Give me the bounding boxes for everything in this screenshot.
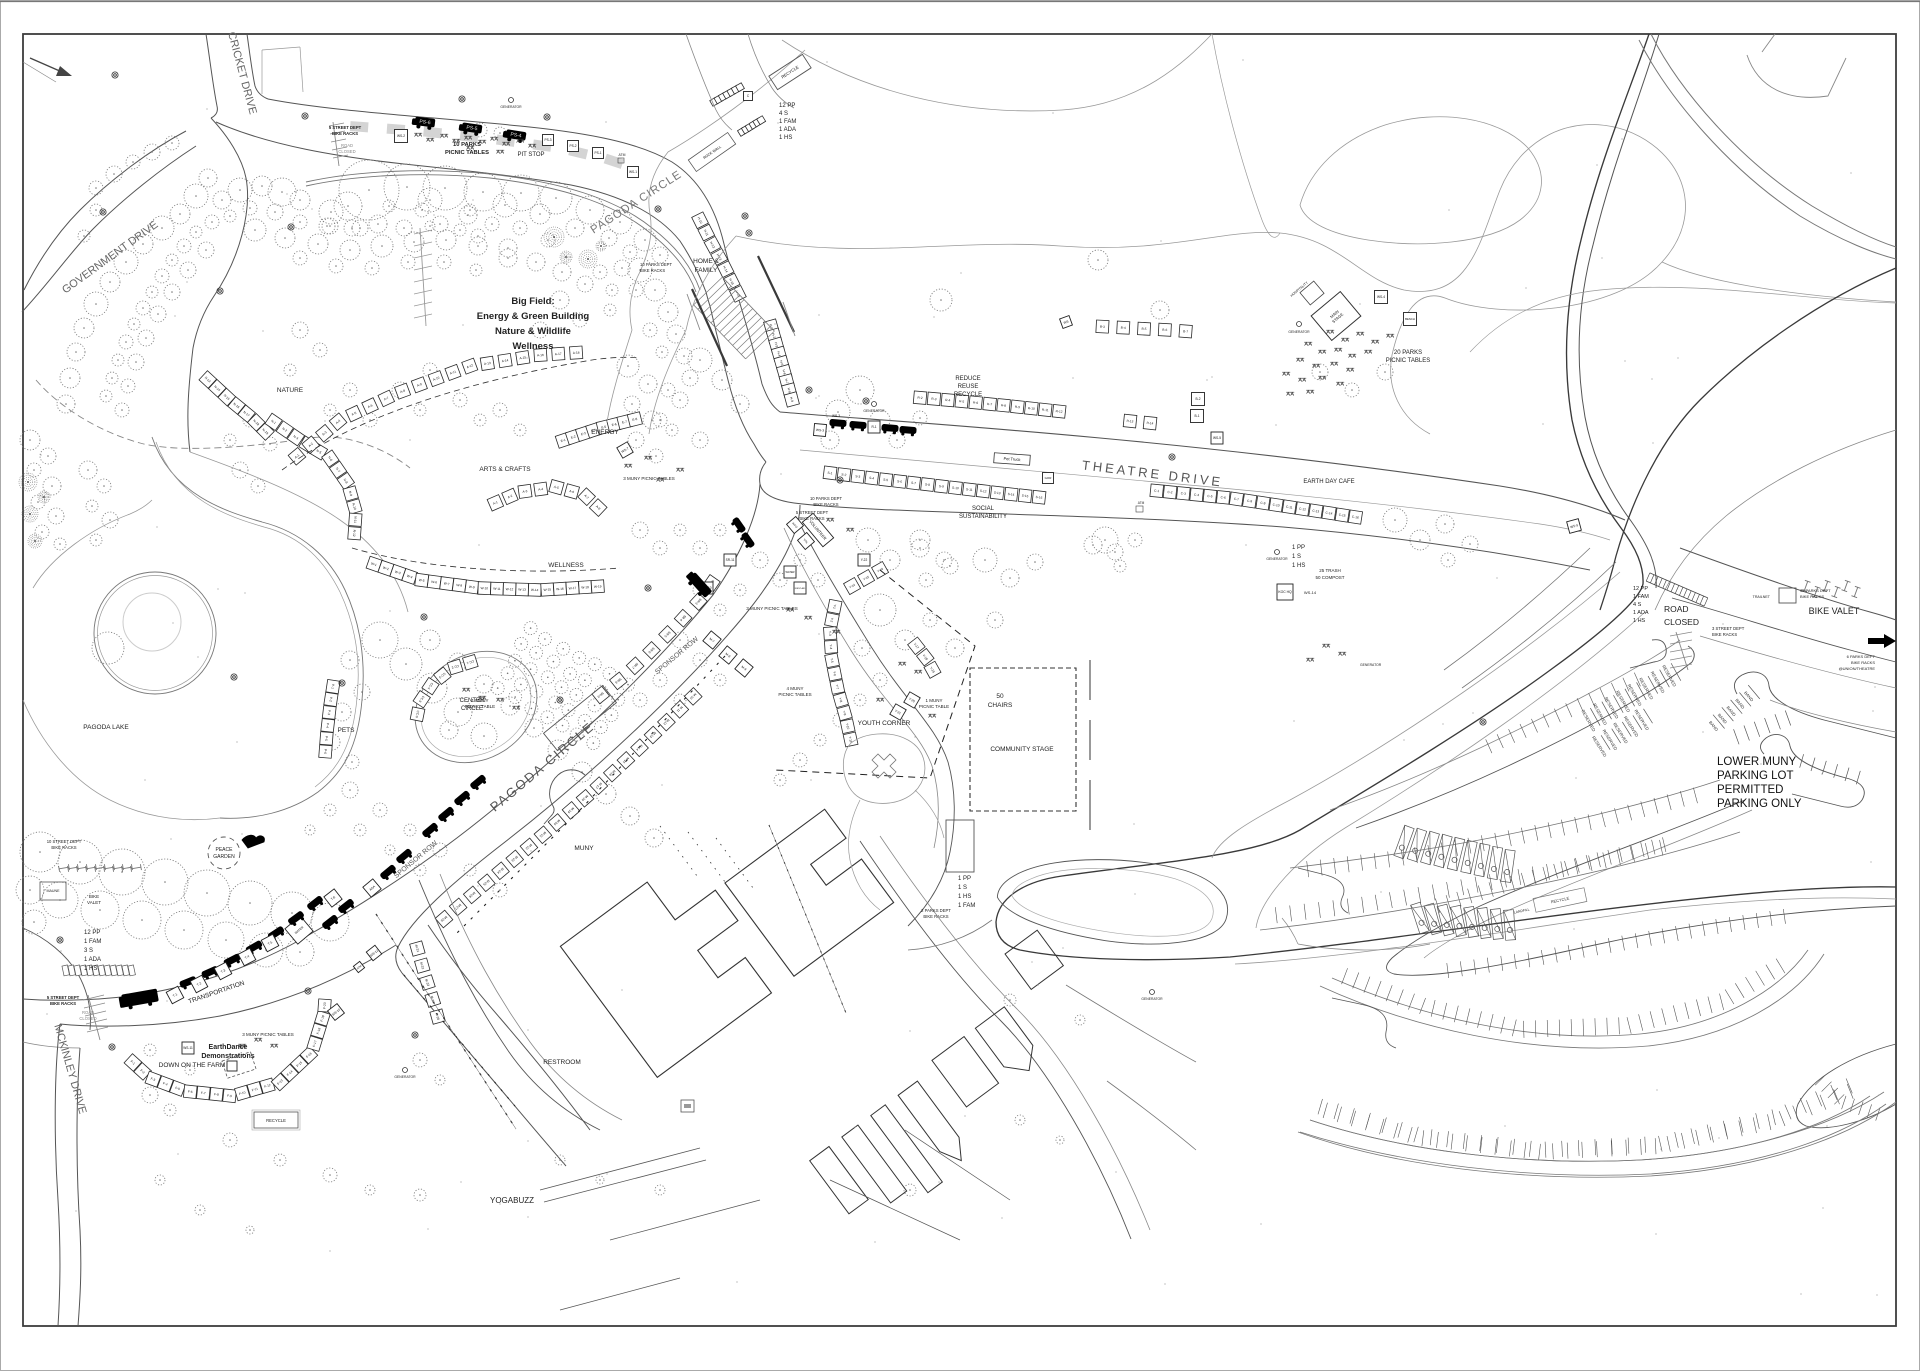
svg-text:W-6: W-6 — [431, 580, 437, 585]
svg-text:R-10: R-10 — [1028, 406, 1036, 411]
svg-text:3 STREET DEPT: 3 STREET DEPT — [1712, 626, 1745, 631]
svg-text:PERMITTED: PERMITTED — [1717, 784, 1783, 796]
svg-text:BIKE RACKS: BIKE RACKS — [640, 268, 665, 273]
svg-text:Big Field:: Big Field: — [511, 296, 554, 307]
svg-text:W-12: W-12 — [506, 587, 514, 591]
svg-text:S-3: S-3 — [855, 474, 861, 479]
svg-text:3 MUNY PICNIC TABLES: 3 MUNY PICNIC TABLES — [746, 606, 798, 611]
svg-text:R-2: R-2 — [917, 396, 923, 400]
svg-text:S-13: S-13 — [994, 491, 1001, 496]
svg-text:DOWN ON THE FARM: DOWN ON THE FARM — [159, 1062, 226, 1069]
svg-text:W-8: W-8 — [456, 583, 462, 588]
svg-text:S-16: S-16 — [1035, 495, 1042, 500]
svg-text:KOC HQ: KOC HQ — [1278, 590, 1292, 594]
svg-text:S-11: S-11 — [966, 487, 973, 492]
svg-text:12 PP: 12 PP — [779, 103, 795, 109]
svg-text:BENCH: BENCH — [1405, 317, 1415, 321]
svg-text:3 S: 3 S — [84, 948, 93, 954]
svg-text:WS-3: WS-3 — [832, 414, 840, 418]
svg-text:R-12: R-12 — [1055, 409, 1063, 414]
svg-text:PAGODA LAKE: PAGODA LAKE — [83, 724, 129, 731]
svg-text:HOME &: HOME & — [693, 258, 719, 265]
svg-text:A-18: A-18 — [573, 351, 580, 355]
svg-text:COMMUNITY STAGE: COMMUNITY STAGE — [990, 746, 1054, 753]
svg-text:C-3: C-3 — [1181, 491, 1187, 496]
svg-text:RECYCLE: RECYCLE — [266, 1118, 286, 1123]
svg-text:1 FAM: 1 FAM — [84, 939, 101, 945]
svg-text:PS-1: PS-1 — [594, 151, 601, 155]
svg-text:P-2: P-2 — [328, 697, 333, 703]
svg-text:SOCIAL: SOCIAL — [972, 506, 995, 512]
svg-text:VALET: VALET — [87, 900, 101, 905]
svg-text:W-15: W-15 — [543, 587, 551, 591]
svg-text:S-5: S-5 — [883, 478, 889, 483]
svg-text:B-3: B-3 — [1100, 325, 1105, 329]
svg-text:1 ADA: 1 ADA — [84, 957, 101, 963]
svg-text:1 ADA: 1 ADA — [1633, 610, 1649, 616]
svg-text:BIKE VALET: BIKE VALET — [1809, 606, 1860, 616]
svg-text:F-9: F-9 — [227, 1094, 232, 1099]
svg-text:N-12: N-12 — [352, 530, 356, 537]
svg-text:LOWER MUNY: LOWER MUNY — [1717, 756, 1797, 768]
svg-text:R-11: R-11 — [1042, 408, 1049, 413]
svg-text:PICNIC TABLE: PICNIC TABLE — [919, 704, 949, 709]
svg-text:MUNY: MUNY — [574, 845, 594, 852]
svg-text:B-4: B-4 — [1121, 326, 1126, 330]
svg-text:1 S: 1 S — [958, 885, 967, 891]
svg-text:BIKE RACKS: BIKE RACKS — [1851, 660, 1875, 665]
svg-text:W-11: W-11 — [493, 587, 501, 591]
svg-text:Y-3: Y-3 — [828, 631, 832, 636]
svg-text:1 HS: 1 HS — [1633, 618, 1646, 624]
svg-text:BIKE RACKS: BIKE RACKS — [1712, 632, 1737, 637]
svg-text:A-17: A-17 — [555, 352, 562, 356]
svg-text:W-17: W-17 — [569, 586, 577, 590]
svg-text:1 FAM: 1 FAM — [958, 903, 975, 909]
svg-text:1 MUNY: 1 MUNY — [471, 698, 488, 703]
svg-text:ROAD: ROAD — [1664, 604, 1689, 614]
svg-text:PS-2: PS-2 — [569, 144, 576, 148]
svg-text:CLOSED: CLOSED — [79, 1016, 96, 1021]
svg-text:RESTROOM: RESTROOM — [543, 1059, 581, 1066]
svg-text:C-9: C-9 — [1260, 501, 1266, 506]
svg-text:F-6: F-6 — [188, 1090, 193, 1095]
svg-text:BIKE RACKS: BIKE RACKS — [923, 914, 948, 919]
svg-text:S-1: S-1 — [827, 471, 833, 476]
svg-text:S-7: S-7 — [911, 481, 917, 486]
svg-text:MAUNE: MAUNE — [47, 889, 61, 893]
svg-text:WELLNESS: WELLNESS — [548, 562, 584, 569]
svg-text:SUSTAINABILITY: SUSTAINABILITY — [959, 514, 1007, 520]
svg-text:A-3: A-3 — [522, 489, 528, 494]
svg-text:12 PP: 12 PP — [84, 930, 100, 936]
svg-text:PICNIC TABLES: PICNIC TABLES — [445, 150, 489, 156]
svg-text:S-9: S-9 — [939, 484, 945, 489]
svg-text:F-7: F-7 — [201, 1091, 206, 1096]
svg-text:4 S: 4 S — [1633, 602, 1642, 608]
svg-text:P-4: P-4 — [325, 723, 330, 729]
svg-text:CHAIRS: CHAIRS — [988, 702, 1013, 709]
svg-text:R-7: R-7 — [987, 402, 993, 407]
svg-text:C-7: C-7 — [1234, 497, 1240, 502]
svg-text:52 PARKS DEPT: 52 PARKS DEPT — [1800, 588, 1831, 593]
svg-text:BIKE RACKS: BIKE RACKS — [799, 516, 824, 521]
svg-text:B-5: B-5 — [1141, 327, 1146, 331]
svg-text:BIKE: BIKE — [89, 894, 99, 899]
svg-text:R-3: R-3 — [931, 397, 937, 401]
svg-text:ENERGY: ENERGY — [591, 429, 619, 436]
svg-text:5 STREET DEPT: 5 STREET DEPT — [796, 510, 829, 515]
svg-text:GOR: GOR — [1045, 476, 1053, 480]
svg-text:P-3: P-3 — [327, 710, 332, 716]
svg-text:GARDEN: GARDEN — [213, 854, 235, 860]
svg-text:WS-2: WS-2 — [397, 134, 405, 138]
svg-text:4 MUNY: 4 MUNY — [786, 686, 803, 691]
svg-text:GENERATOR: GENERATOR — [394, 1075, 416, 1079]
svg-text:1 S: 1 S — [1292, 554, 1301, 560]
svg-text:NATURE: NATURE — [277, 387, 304, 394]
svg-text:CLOSED: CLOSED — [338, 149, 355, 154]
svg-text:R-1: R-1 — [871, 425, 876, 429]
svg-text:12 PP: 12 PP — [1633, 586, 1648, 592]
svg-text:F-8: F-8 — [214, 1092, 219, 1097]
svg-text:2 PARKS DEPT: 2 PARKS DEPT — [921, 908, 951, 913]
svg-text:W-9: W-9 — [469, 585, 475, 590]
svg-text:W-19: W-19 — [594, 584, 602, 588]
svg-text:50 COMPOST: 50 COMPOST — [1315, 575, 1344, 580]
svg-text:FAMILY: FAMILY — [695, 267, 718, 274]
svg-text:BIKE RACKS: BIKE RACKS — [813, 502, 838, 507]
svg-text:10 PARKS DEPT: 10 PARKS DEPT — [640, 262, 672, 267]
svg-text:W-5: W-5 — [419, 578, 425, 583]
svg-text:B-7: B-7 — [1183, 329, 1188, 333]
svg-text:Demonstrations: Demonstrations — [201, 1053, 254, 1060]
svg-text:S-15: S-15 — [1022, 494, 1029, 499]
svg-text:4 S: 4 S — [779, 111, 788, 117]
svg-text:REUSE: REUSE — [958, 384, 979, 390]
svg-text:PS-3: PS-3 — [544, 138, 551, 142]
svg-text:WS-1: WS-1 — [629, 170, 637, 174]
svg-text:Y-4: Y-4 — [829, 644, 833, 649]
svg-text:A-4: A-4 — [538, 487, 544, 492]
svg-text:1 FAM: 1 FAM — [1633, 594, 1649, 600]
svg-text:PARKING ONLY: PARKING ONLY — [1717, 798, 1802, 810]
svg-text:GENERATOR: GENERATOR — [1266, 557, 1288, 561]
svg-text:1 HS: 1 HS — [1292, 563, 1305, 569]
svg-text:R-14: R-14 — [1146, 421, 1153, 426]
svg-text:YOUTH CORNER: YOUTH CORNER — [858, 720, 911, 727]
svg-text:BIKE RACKS: BIKE RACKS — [1800, 594, 1824, 599]
svg-text:R-5: R-5 — [959, 399, 965, 404]
svg-text:A-16: A-16 — [537, 353, 544, 357]
svg-text:PARKING LOT: PARKING LOT — [1717, 770, 1793, 782]
svg-text:YOGABUZZ: YOGABUZZ — [490, 1196, 534, 1205]
svg-text:PICNIC TABLES: PICNIC TABLES — [1386, 358, 1430, 364]
svg-text:1 FAM: 1 FAM — [779, 119, 796, 125]
svg-text:C-2: C-2 — [1167, 490, 1173, 495]
svg-text:EARTH DAY CAFE: EARTH DAY CAFE — [1303, 479, 1354, 485]
svg-text:RECYCLE: RECYCLE — [954, 392, 982, 398]
svg-text:ATM: ATM — [1138, 501, 1145, 505]
svg-text:5 STREET DEPT: 5 STREET DEPT — [47, 995, 80, 1000]
svg-text:@UNION/THEATRE: @UNION/THEATRE — [1839, 666, 1876, 671]
svg-text:C-1: C-1 — [1154, 489, 1160, 494]
svg-text:P-5: P-5 — [324, 736, 328, 741]
svg-text:C-4: C-4 — [1194, 493, 1200, 498]
svg-text:S-14: S-14 — [1008, 492, 1015, 497]
svg-text:Wellness: Wellness — [512, 341, 553, 352]
svg-text:R-4: R-4 — [945, 398, 951, 402]
svg-text:W-10: W-10 — [480, 586, 488, 590]
svg-text:S-8: S-8 — [925, 482, 931, 487]
svg-text:1 HS: 1 HS — [84, 966, 97, 972]
svg-text:S-10: S-10 — [952, 486, 959, 491]
svg-text:1 HS: 1 HS — [958, 894, 971, 900]
svg-text:S-6: S-6 — [897, 479, 903, 484]
svg-text:PIT STOP: PIT STOP — [517, 152, 544, 158]
svg-text:BIKE RACKS: BIKE RACKS — [51, 845, 76, 850]
svg-text:1 PP: 1 PP — [958, 876, 971, 882]
svg-text:W-7: W-7 — [444, 581, 450, 586]
svg-text:ROAD: ROAD — [341, 143, 353, 148]
svg-text:1 MUNY: 1 MUNY — [925, 698, 942, 703]
svg-text:PICNIC TABLES: PICNIC TABLES — [778, 692, 811, 697]
svg-text:R-9: R-9 — [1015, 405, 1021, 410]
svg-text:10 PARKS: 10 PARKS — [453, 142, 481, 148]
svg-text:S-4: S-4 — [869, 476, 875, 481]
svg-text:WS-5: WS-5 — [1213, 436, 1221, 440]
svg-text:ARTS & CRAFTS: ARTS & CRAFTS — [479, 466, 531, 473]
svg-text:S-12: S-12 — [980, 489, 987, 494]
svg-text:P-1: P-1 — [330, 684, 335, 690]
svg-text:25 TRASH: 25 TRASH — [1319, 568, 1340, 573]
svg-text:6 PARKS DEPT: 6 PARKS DEPT — [1847, 654, 1876, 659]
svg-text:GENERATOR: GENERATOR — [1141, 997, 1163, 1001]
svg-text:Y-22: Y-22 — [861, 558, 868, 562]
svg-text:ROAD: ROAD — [82, 1010, 94, 1015]
svg-text:R-8: R-8 — [1001, 403, 1007, 408]
svg-text:20 PARKS: 20 PARKS — [1394, 350, 1422, 356]
svg-text:TRAILNET: TRAILNET — [1753, 595, 1771, 599]
svg-text:WATER: WATER — [785, 570, 794, 574]
svg-text:P-6: P-6 — [323, 749, 327, 754]
svg-text:WS-11: WS-11 — [183, 1046, 193, 1050]
svg-text:GENERATOR: GENERATOR — [1360, 663, 1382, 667]
svg-text:SR-11: SR-11 — [726, 558, 735, 562]
svg-text:W-16: W-16 — [556, 587, 564, 591]
svg-text:B-6: B-6 — [1162, 328, 1167, 332]
svg-text:REDUCE: REDUCE — [955, 376, 980, 382]
svg-text:EarthDance: EarthDance — [209, 1044, 248, 1051]
svg-text:10 STREET DEPT: 10 STREET DEPT — [47, 839, 82, 844]
svg-text:WS-4: WS-4 — [1377, 295, 1385, 299]
svg-text:3 MUNY PICNIC TABLES: 3 MUNY PICNIC TABLES — [623, 476, 675, 481]
svg-text:1 ADA: 1 ADA — [779, 127, 796, 133]
svg-text:CLOSED: CLOSED — [1664, 617, 1699, 627]
svg-text:PETS: PETS — [338, 727, 356, 734]
svg-text:W-13: W-13 — [518, 587, 526, 591]
svg-text:5 STREET DEPT: 5 STREET DEPT — [329, 125, 362, 130]
svg-text:ATM: ATM — [619, 153, 626, 157]
svg-text:S-2: S-2 — [841, 473, 847, 478]
svg-text:R-13: R-13 — [1126, 419, 1133, 424]
svg-text:C-5: C-5 — [1207, 494, 1213, 499]
svg-text:B-1: B-1 — [1195, 414, 1200, 418]
svg-text:C-8: C-8 — [1247, 499, 1253, 504]
svg-text:PICNIC TABLE: PICNIC TABLE — [465, 704, 495, 709]
svg-text:N-11: N-11 — [353, 516, 357, 523]
svg-text:10 PARKS DEPT: 10 PARKS DEPT — [810, 496, 842, 501]
svg-text:C-6: C-6 — [1220, 495, 1226, 500]
svg-text:GENERATOR: GENERATOR — [1288, 330, 1310, 334]
svg-text:WS-3: WS-3 — [816, 428, 825, 433]
svg-text:Energy & Green Building: Energy & Green Building — [477, 311, 590, 322]
svg-text:WS-14: WS-14 — [1304, 590, 1317, 595]
svg-text:R-6: R-6 — [973, 401, 979, 406]
svg-text:3 MUNY PICNIC TABLES: 3 MUNY PICNIC TABLES — [242, 1032, 294, 1037]
svg-text:BIKE RACKS: BIKE RACKS — [50, 1001, 76, 1006]
svg-text:PEACE: PEACE — [216, 847, 234, 853]
svg-text:1 PP: 1 PP — [1292, 545, 1305, 551]
svg-text:FIRST AID: FIRST AID — [795, 587, 806, 590]
svg-text:Nature & Wildlife: Nature & Wildlife — [495, 326, 571, 337]
svg-text:GENERATOR: GENERATOR — [863, 409, 885, 413]
svg-text:B-2: B-2 — [1196, 397, 1201, 401]
svg-text:W-18: W-18 — [581, 585, 589, 589]
svg-text:GENERATOR: GENERATOR — [500, 105, 522, 109]
svg-text:W-14: W-14 — [531, 588, 539, 592]
svg-text:F-20: F-20 — [322, 1002, 326, 1009]
svg-text:BIKE RACKS: BIKE RACKS — [332, 131, 358, 136]
svg-text:1 HS: 1 HS — [779, 135, 792, 141]
svg-text:50: 50 — [996, 693, 1004, 700]
